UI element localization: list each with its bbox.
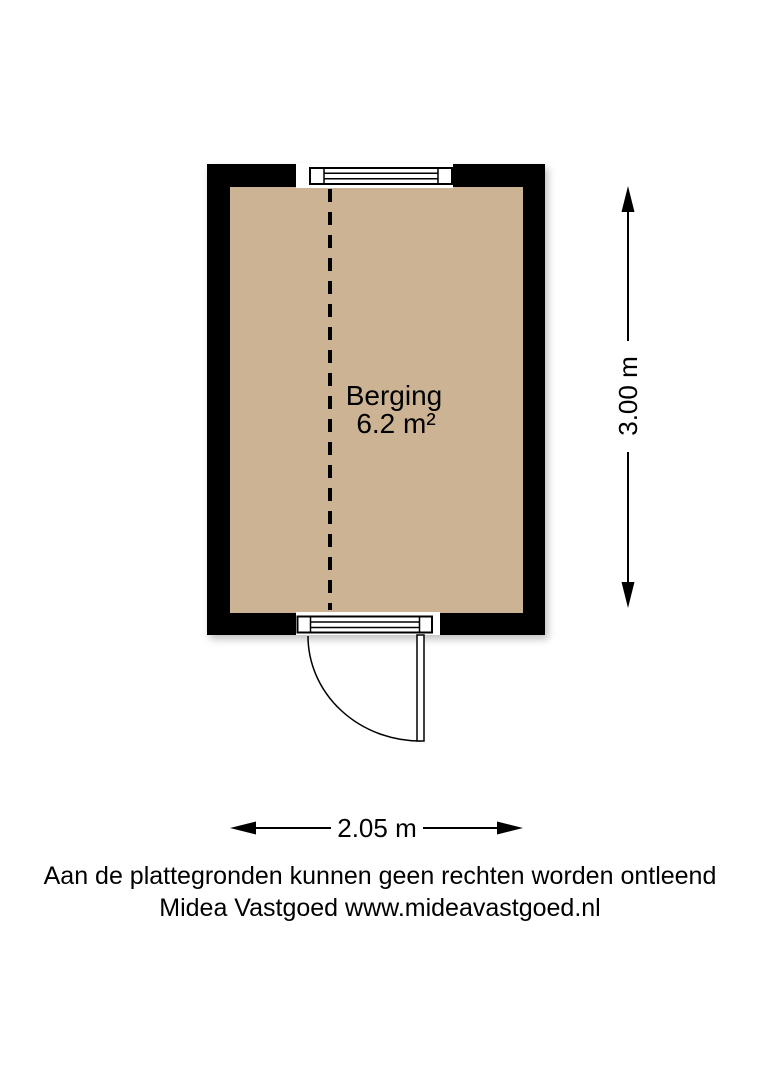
arrowhead-right-icon — [497, 822, 523, 835]
arrowhead-left-icon — [230, 822, 256, 835]
footer-credit: Midea Vastgoed www.mideavastgoed.nl — [159, 894, 600, 922]
room-area-label: 6.2 m² — [356, 408, 435, 439]
footer-disclaimer: Aan de plattegronden kunnen geen rechten… — [44, 862, 717, 890]
footer: Aan de plattegronden kunnen geen rechten… — [44, 862, 717, 922]
door-leaf — [417, 635, 424, 741]
floorplan-page: Berging 6.2 m² 3.00 m 2.05 m Aan de plat… — [0, 0, 764, 1080]
door-frame — [298, 617, 433, 633]
room-berging: Berging 6.2 m² — [207, 163, 545, 741]
floorplan-drawing: Berging 6.2 m² 3.00 m 2.05 m Aan de plat… — [0, 0, 764, 1080]
dimension-vertical: 3.00 m — [613, 186, 643, 608]
dimension-vertical-label: 3.00 m — [613, 356, 643, 436]
window-top — [296, 163, 453, 188]
window-frame — [310, 168, 452, 184]
door-swing-arc — [308, 636, 421, 741]
arrowhead-down-icon — [622, 582, 635, 608]
dimension-horizontal: 2.05 m — [230, 813, 523, 843]
door-bottom — [296, 612, 440, 741]
arrowhead-up-icon — [622, 186, 635, 212]
dimension-horizontal-label: 2.05 m — [337, 813, 417, 843]
room-name-label: Berging — [346, 380, 443, 411]
